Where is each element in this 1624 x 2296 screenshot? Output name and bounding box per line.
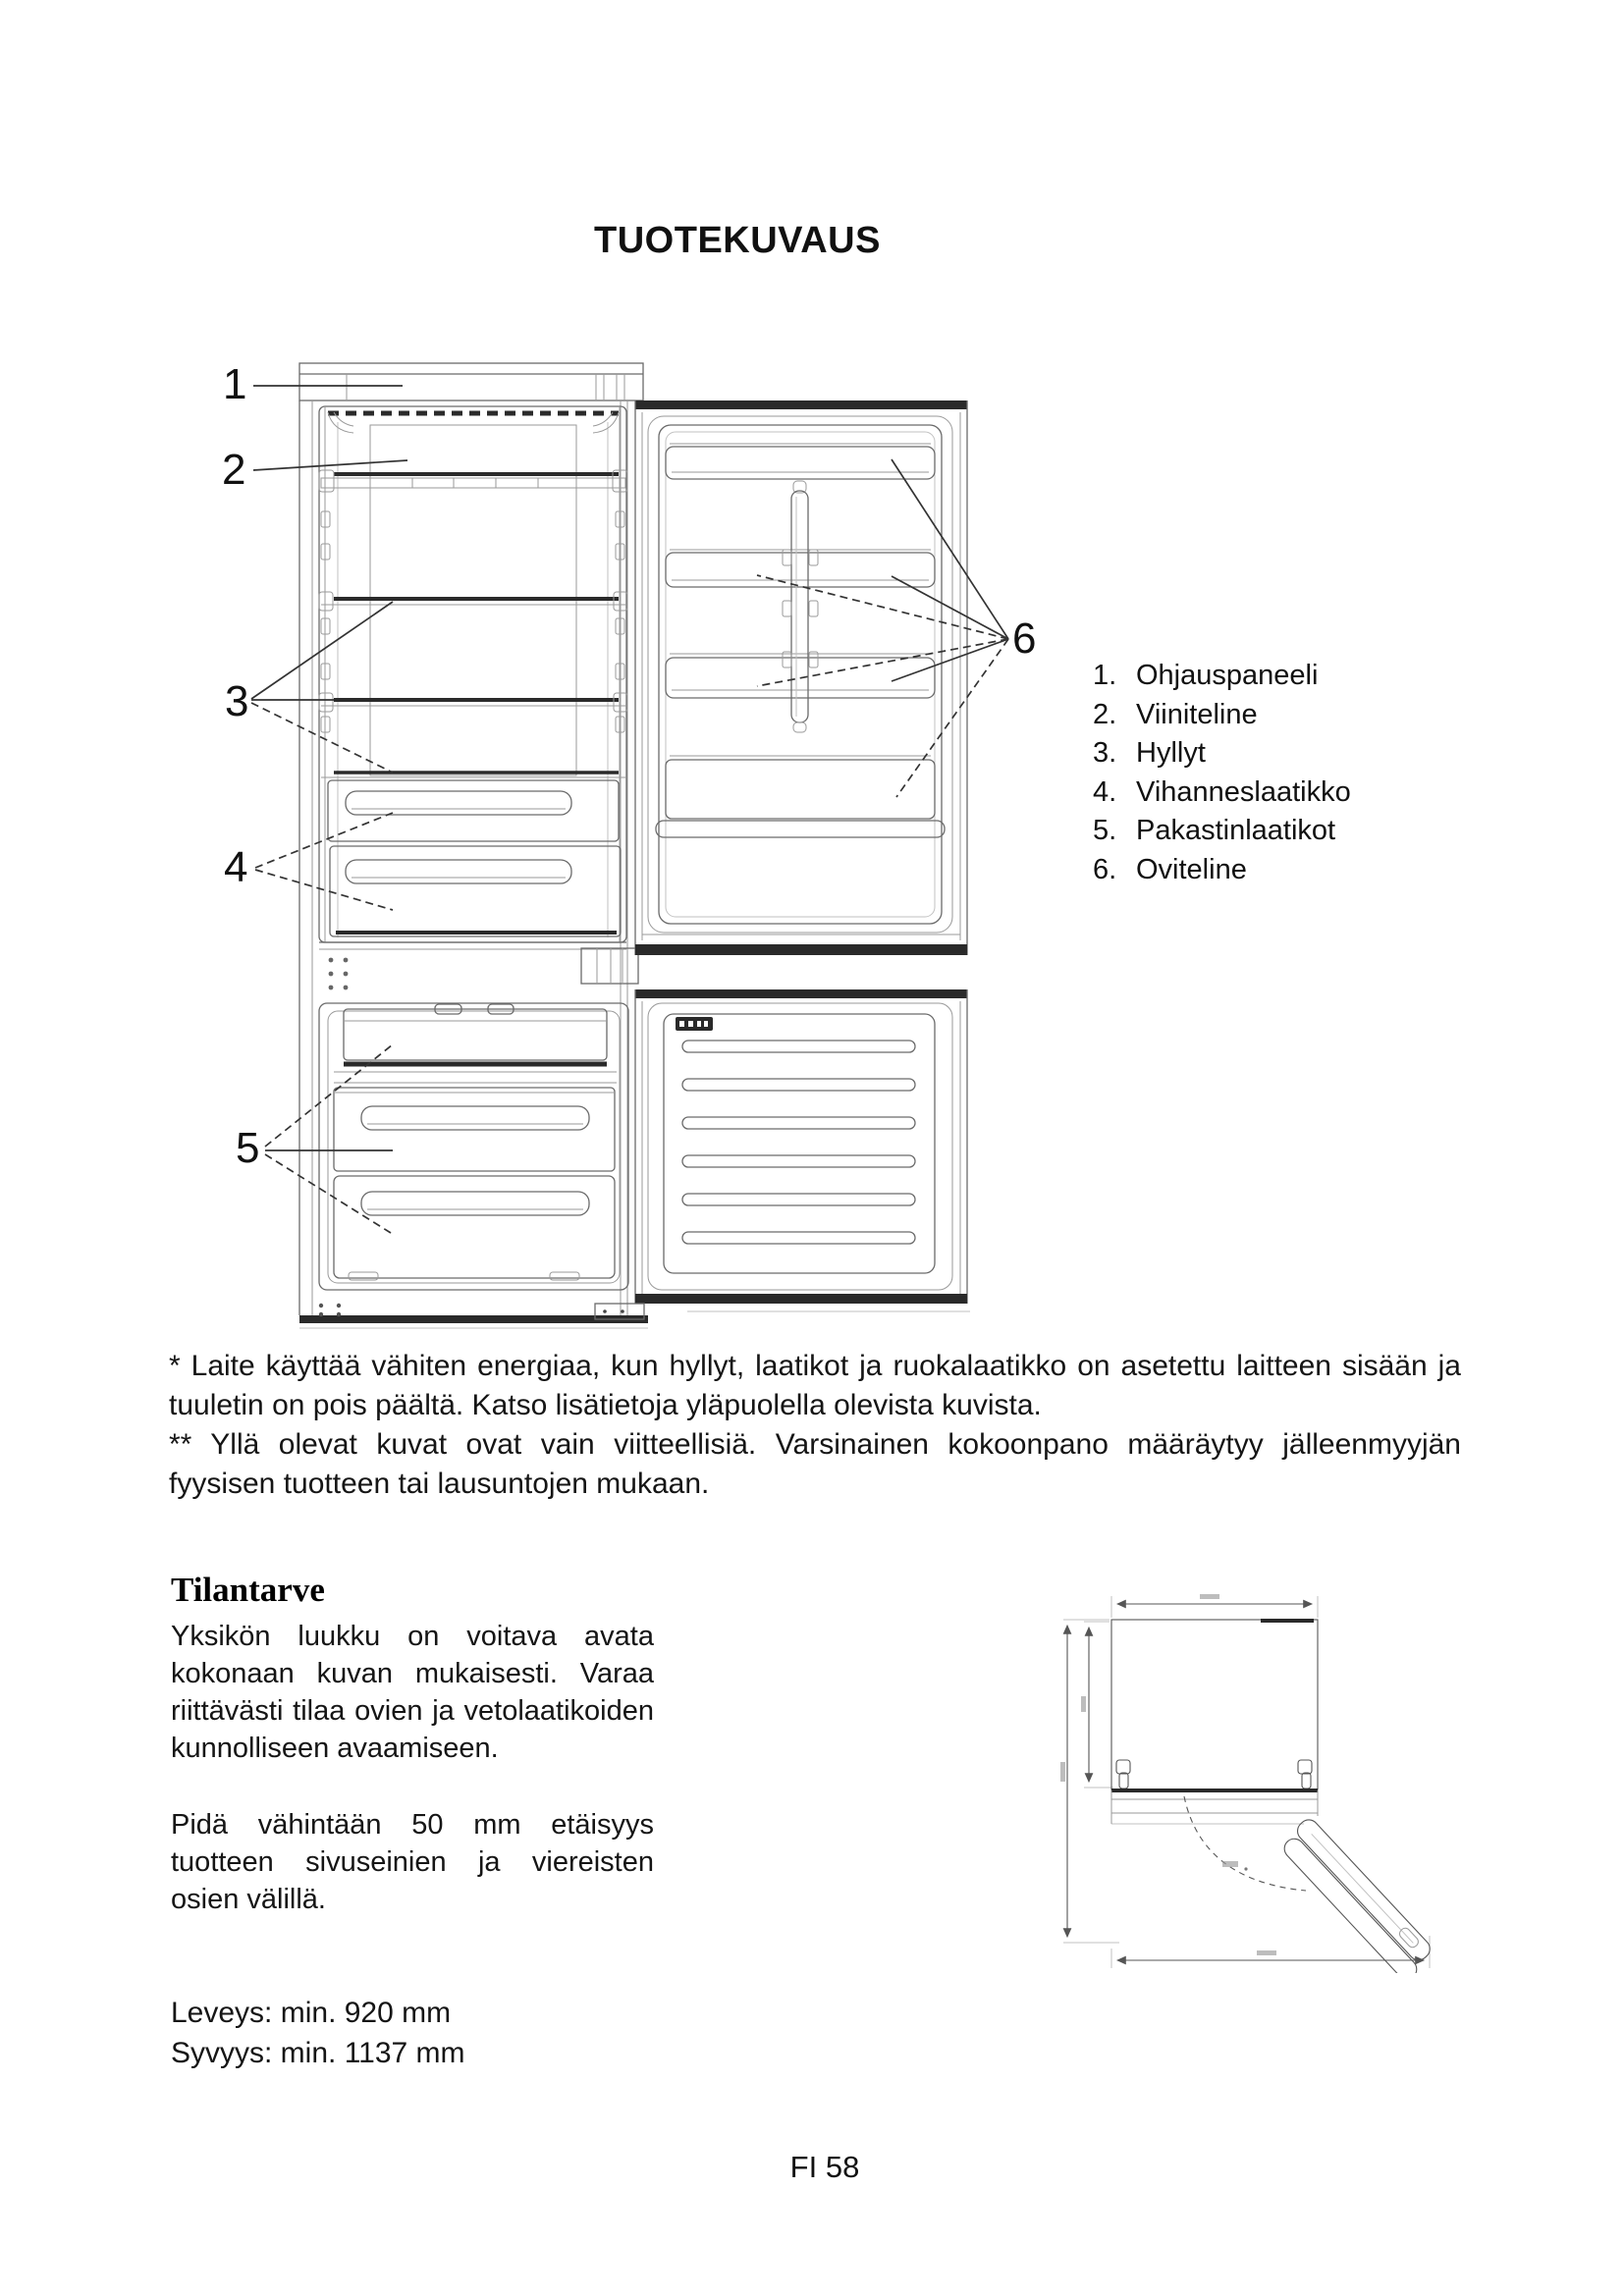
legend-item-pakastinlaatikot: 5. Pakastinlaatikot <box>1093 815 1351 854</box>
callout-3: 3 <box>225 678 248 725</box>
clearance-diagram <box>1021 1571 1483 1973</box>
freezer-compartment <box>319 1003 628 1290</box>
callout-2: 2 <box>222 447 245 494</box>
legend-item-vihanneslaatikko: 4. Vihanneslaatikko <box>1093 776 1351 816</box>
clearance-width: Leveys: min. 920 mm <box>171 1993 654 2033</box>
legend-item-oviteline: 6. Oviteline <box>1093 854 1351 893</box>
clearance-dimensions: Leveys: min. 920 mm Syvyys: min. 1137 mm <box>171 1993 654 2073</box>
legend-item-viiniteline: 2. Viiniteline <box>1093 699 1351 738</box>
callout-4: 4 <box>224 844 247 891</box>
freezer-door <box>595 989 970 1319</box>
door-swing-arc <box>1184 1796 1306 1891</box>
parts-legend: 1. Ohjauspaneeli 2. Viiniteline 3. Hylly… <box>1093 660 1351 892</box>
clearance-section: Tilantarve Yksikön luukku on voitava ava… <box>171 1571 654 2073</box>
manual-page: TUOTEKUVAUS <box>0 0 1624 2296</box>
legend-label: Pakastinlaatikot <box>1136 815 1335 847</box>
legend-item-ohjauspaneeli: 1. Ohjauspaneeli <box>1093 660 1351 699</box>
dimension-lines <box>1060 1594 1430 1968</box>
legend-label: Vihanneslaatikko <box>1136 776 1351 809</box>
legend-item-hyllyt: 3. Hyllyt <box>1093 737 1351 776</box>
legend-number: 6. <box>1093 854 1136 886</box>
page-number: FI 58 <box>727 2150 923 2185</box>
legend-number: 1. <box>1093 660 1136 692</box>
legend-number: 3. <box>1093 737 1136 770</box>
legend-number: 4. <box>1093 776 1136 809</box>
freezer-door-badge <box>676 1017 713 1031</box>
note-energy: * Laite käyttää vähiten energiaa, kun hy… <box>169 1347 1461 1425</box>
callout-5: 5 <box>236 1125 259 1172</box>
clearance-heading: Tilantarve <box>171 1571 654 1610</box>
clearance-paragraph-1: Yksikön luukku on voitava avata kokonaan… <box>171 1618 654 1767</box>
legend-label: Viiniteline <box>1136 699 1258 731</box>
cabinet-top-view <box>1111 1620 1318 1789</box>
legend-label: Hyllyt <box>1136 737 1206 770</box>
legend-label: Oviteline <box>1136 854 1247 886</box>
door-open-top-view <box>1277 1816 1437 1973</box>
fridge-compartment <box>319 406 627 942</box>
compartment-divider <box>319 942 638 989</box>
clearance-paragraph-2: Pidä vähintään 50 mm etäisyys tuotteen s… <box>171 1806 654 1918</box>
control-panel-housing <box>299 363 643 400</box>
fridge-diagram <box>245 353 1051 1335</box>
legend-number: 2. <box>1093 699 1136 731</box>
cabinet-shell <box>299 400 648 1328</box>
legend-label: Ohjauspaneeli <box>1136 660 1318 692</box>
callout-6: 6 <box>1012 615 1036 663</box>
legend-number: 5. <box>1093 815 1136 847</box>
door-closed-top-view <box>1111 1790 1318 1824</box>
note-disclaimer: ** Yllä olevat kuvat ovat vain viitteell… <box>169 1425 1461 1504</box>
clearance-depth: Syvyys: min. 1137 mm <box>171 2033 654 2073</box>
energy-notes: * Laite käyttää vähiten energiaa, kun hy… <box>169 1347 1461 1504</box>
page-title: TUOTEKUVAUS <box>0 220 1475 262</box>
callout-1: 1 <box>223 361 246 408</box>
